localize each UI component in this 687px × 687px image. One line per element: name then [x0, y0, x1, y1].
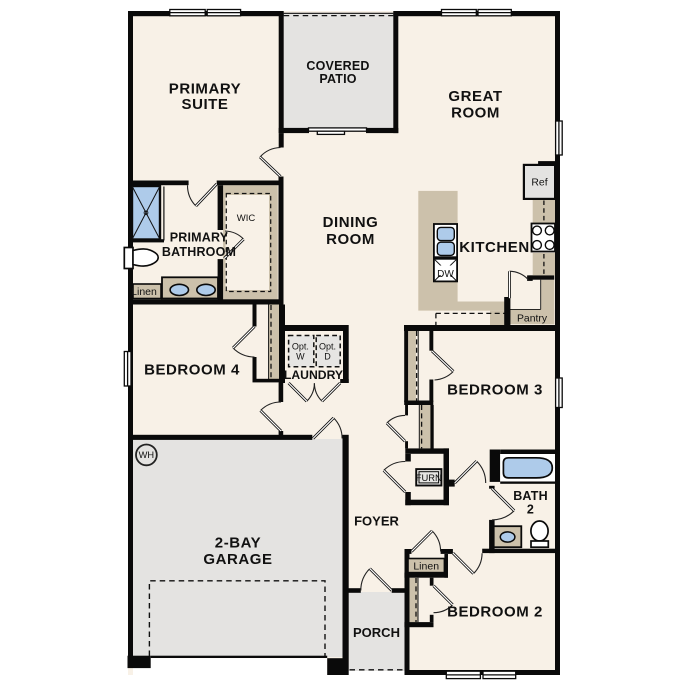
svg-text:BEDROOM 3: BEDROOM 3: [447, 382, 543, 399]
svg-text:Opt.: Opt.: [292, 342, 309, 352]
svg-text:Linen: Linen: [131, 286, 157, 298]
svg-text:W: W: [296, 351, 305, 361]
svg-text:2: 2: [527, 503, 534, 517]
svg-text:Linen: Linen: [413, 561, 439, 573]
svg-text:PRIMARY: PRIMARY: [169, 81, 241, 98]
svg-text:PATIO: PATIO: [319, 72, 356, 86]
svg-text:WIC: WIC: [237, 213, 256, 224]
svg-text:BEDROOM 4: BEDROOM 4: [144, 362, 240, 379]
svg-text:2-BAY: 2-BAY: [215, 535, 261, 552]
svg-text:Opt.: Opt.: [319, 342, 336, 352]
svg-text:COVERED: COVERED: [306, 59, 369, 73]
svg-text:BATH: BATH: [513, 489, 548, 503]
svg-text:ROOM: ROOM: [326, 231, 375, 248]
svg-text:PORCH: PORCH: [353, 625, 400, 640]
svg-text:SUITE: SUITE: [182, 96, 229, 113]
svg-text:LAUNDRY: LAUNDRY: [284, 368, 343, 382]
svg-text:WH: WH: [139, 450, 155, 460]
svg-text:FURN: FURN: [416, 472, 442, 483]
svg-text:BATHROOM: BATHROOM: [162, 245, 236, 259]
svg-text:FOYER: FOYER: [354, 514, 399, 529]
svg-text:Ref: Ref: [531, 178, 547, 189]
svg-text:GREAT: GREAT: [448, 88, 502, 105]
svg-text:GARAGE: GARAGE: [203, 551, 272, 568]
svg-text:KITCHEN: KITCHEN: [459, 239, 530, 256]
svg-text:DINING: DINING: [323, 214, 379, 231]
svg-text:Pantry: Pantry: [517, 314, 548, 325]
svg-text:ROOM: ROOM: [451, 104, 500, 121]
svg-text:DW: DW: [437, 269, 454, 280]
svg-text:D: D: [324, 351, 331, 361]
svg-text:BEDROOM 2: BEDROOM 2: [447, 604, 543, 621]
svg-text:PRIMARY: PRIMARY: [170, 231, 229, 245]
